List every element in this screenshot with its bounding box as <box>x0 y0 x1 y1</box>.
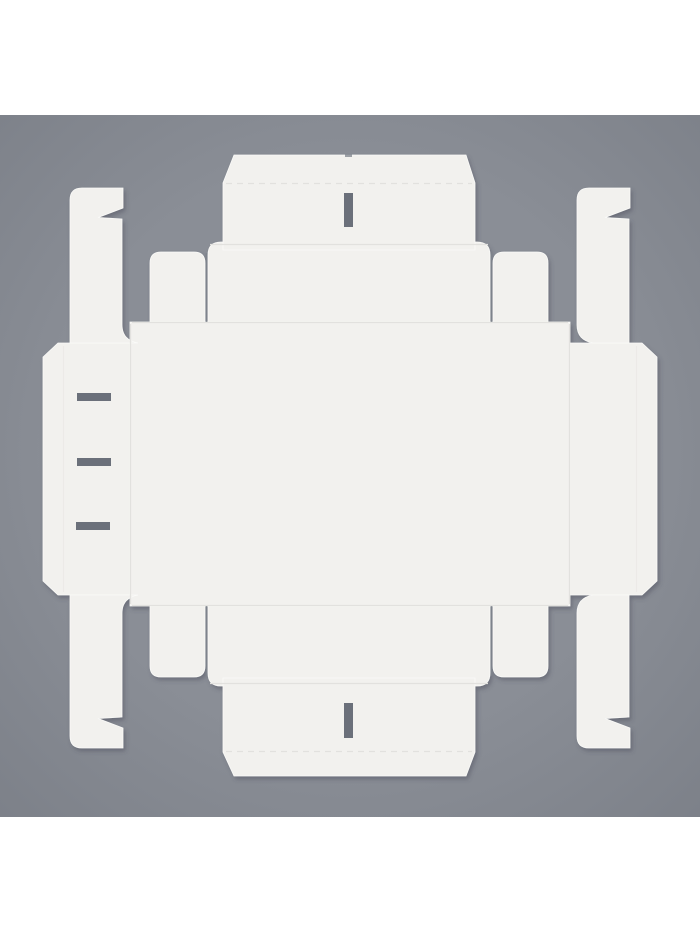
top-wall-panel <box>208 242 490 322</box>
bottom-right-lock-tab <box>577 595 630 748</box>
lock-slot-top <box>344 193 353 227</box>
top-right-lock-tab <box>577 188 630 343</box>
bottom-left-corner-flap <box>150 606 205 677</box>
bottom-right-corner-flap <box>493 606 548 677</box>
left-side-panel <box>43 343 130 595</box>
bottom-wall-panel <box>208 606 490 686</box>
product-photo <box>0 0 700 933</box>
top-left-corner-flap <box>150 252 205 322</box>
letterbox-bottom <box>0 817 700 933</box>
top-right-corner-flap <box>493 252 548 322</box>
lock-slot-bottom <box>344 703 353 738</box>
edge-nick <box>345 154 352 157</box>
bottom-panel <box>130 322 570 606</box>
side-slit-2 <box>77 458 111 466</box>
side-slit-3 <box>76 522 110 530</box>
box-dieline-photo-svg <box>0 0 700 933</box>
letterbox-top <box>0 0 700 115</box>
right-side-panel <box>570 343 657 595</box>
side-slit-1 <box>77 393 111 401</box>
